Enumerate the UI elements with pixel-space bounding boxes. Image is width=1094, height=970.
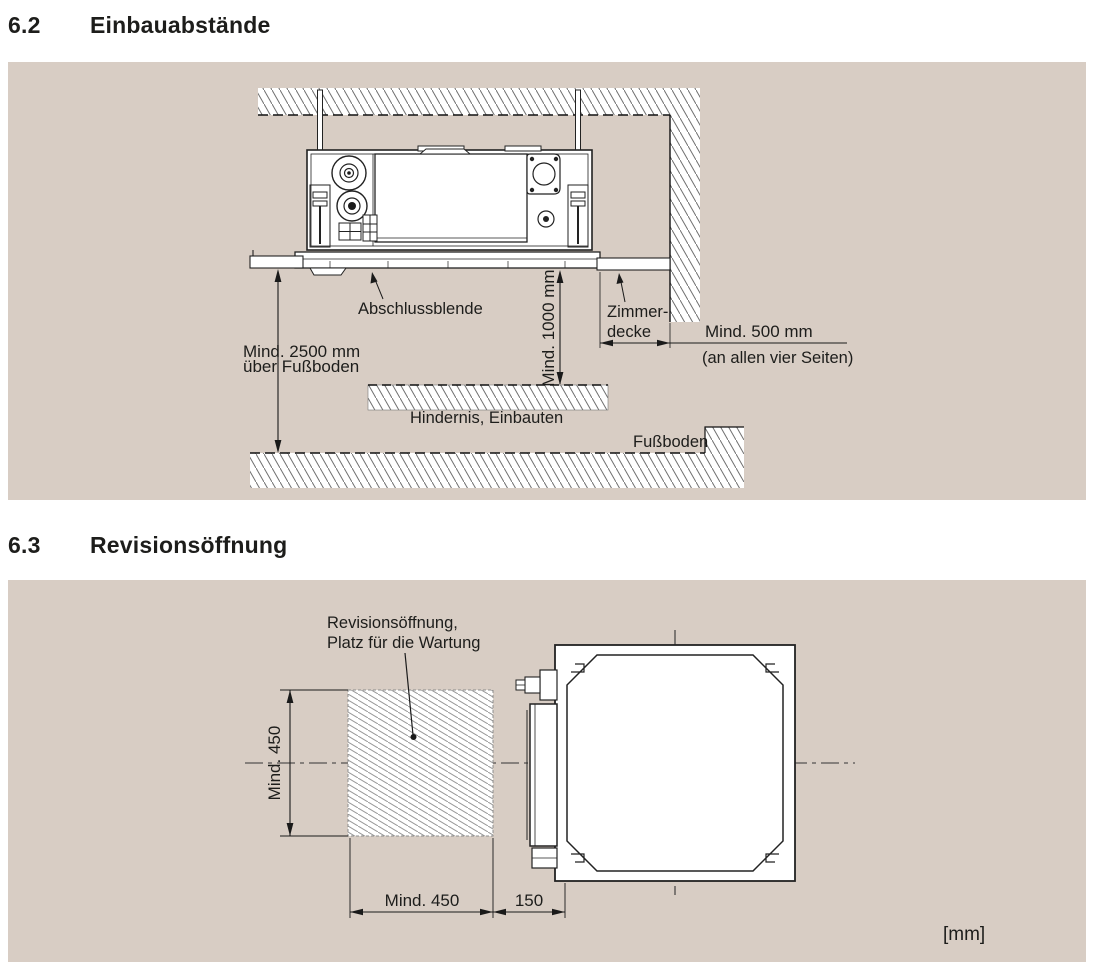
dimension-1000-label: Mind. 1000 mm: [539, 269, 558, 386]
dimension-1000: Mind. 1000 mm: [539, 269, 563, 386]
section-number-63: 6.3: [8, 532, 90, 559]
abschlussblende-label: Abschlussblende: [358, 300, 483, 318]
dimension-500-label-line2: (an allen vier Seiten): [702, 349, 853, 367]
indoor-unit-side-view: [307, 146, 592, 250]
obstacle-hatch: [368, 385, 608, 410]
revisionsoeffnung-drawing: Revisionsöffnung, Platz für die Wartung …: [8, 580, 1086, 962]
units-note: [mm]: [943, 924, 985, 945]
dimension-450-horizontal-label: Mind. 450: [385, 891, 460, 910]
diagram-revisionsoeffnung: Revisionsöffnung, Platz für die Wartung …: [8, 580, 1086, 962]
einbauabstaende-drawing: Hindernis, Einbauten Fußboden Mind. 2500…: [8, 62, 1086, 500]
ceiling-slab-hatch: [258, 88, 700, 115]
floor-label: Fußboden: [633, 433, 708, 451]
dimension-500-label-line1: Mind. 500 mm: [705, 322, 813, 341]
diagram-einbauabstaende: Hindernis, Einbauten Fußboden Mind. 2500…: [8, 62, 1086, 500]
revision-label-line2: Platz für die Wartung: [327, 634, 480, 652]
zimmerdecke-label-line2: decke: [607, 323, 651, 341]
indoor-unit-top-view: [516, 645, 795, 881]
pipe-connection-upper: [332, 156, 366, 190]
dimension-2500-label-line2: über Fußboden: [243, 357, 359, 376]
heat-exchanger-panel: [375, 149, 527, 242]
drain-stub: [532, 848, 557, 868]
dimension-450-vertical-label: Mind. 450: [265, 726, 284, 801]
section-number-62: 6.2: [8, 12, 90, 39]
zimmerdecke-label-line1: Zimmer-: [607, 303, 668, 321]
dimension-150-label: 150: [515, 891, 543, 910]
section-heading-63: 6.3 Revisionsöffnung: [8, 532, 287, 559]
abschlussblende-callout: Abschlussblende: [358, 272, 483, 318]
manual-page: 6.2 Einbauabstände: [0, 0, 1094, 970]
wall-hatch: [670, 88, 700, 322]
section-title-63: Revisionsöffnung: [90, 532, 287, 559]
room-ceiling-right: [597, 258, 670, 270]
obstacle-label: Hindernis, Einbauten: [410, 409, 563, 427]
section-title-62: Einbauabstände: [90, 12, 270, 39]
revision-opening-hatch: [348, 690, 493, 836]
duct-flange: [527, 704, 557, 846]
dimension-2500: Mind. 2500 mm über Fußboden: [243, 269, 360, 453]
revision-label-line1: Revisionsöffnung,: [327, 614, 458, 632]
refrigerant-pipe-stub: [516, 670, 557, 700]
zimmerdecke-callout: Zimmer- decke: [607, 273, 668, 341]
section-heading-62: 6.2 Einbauabstände: [8, 12, 270, 39]
